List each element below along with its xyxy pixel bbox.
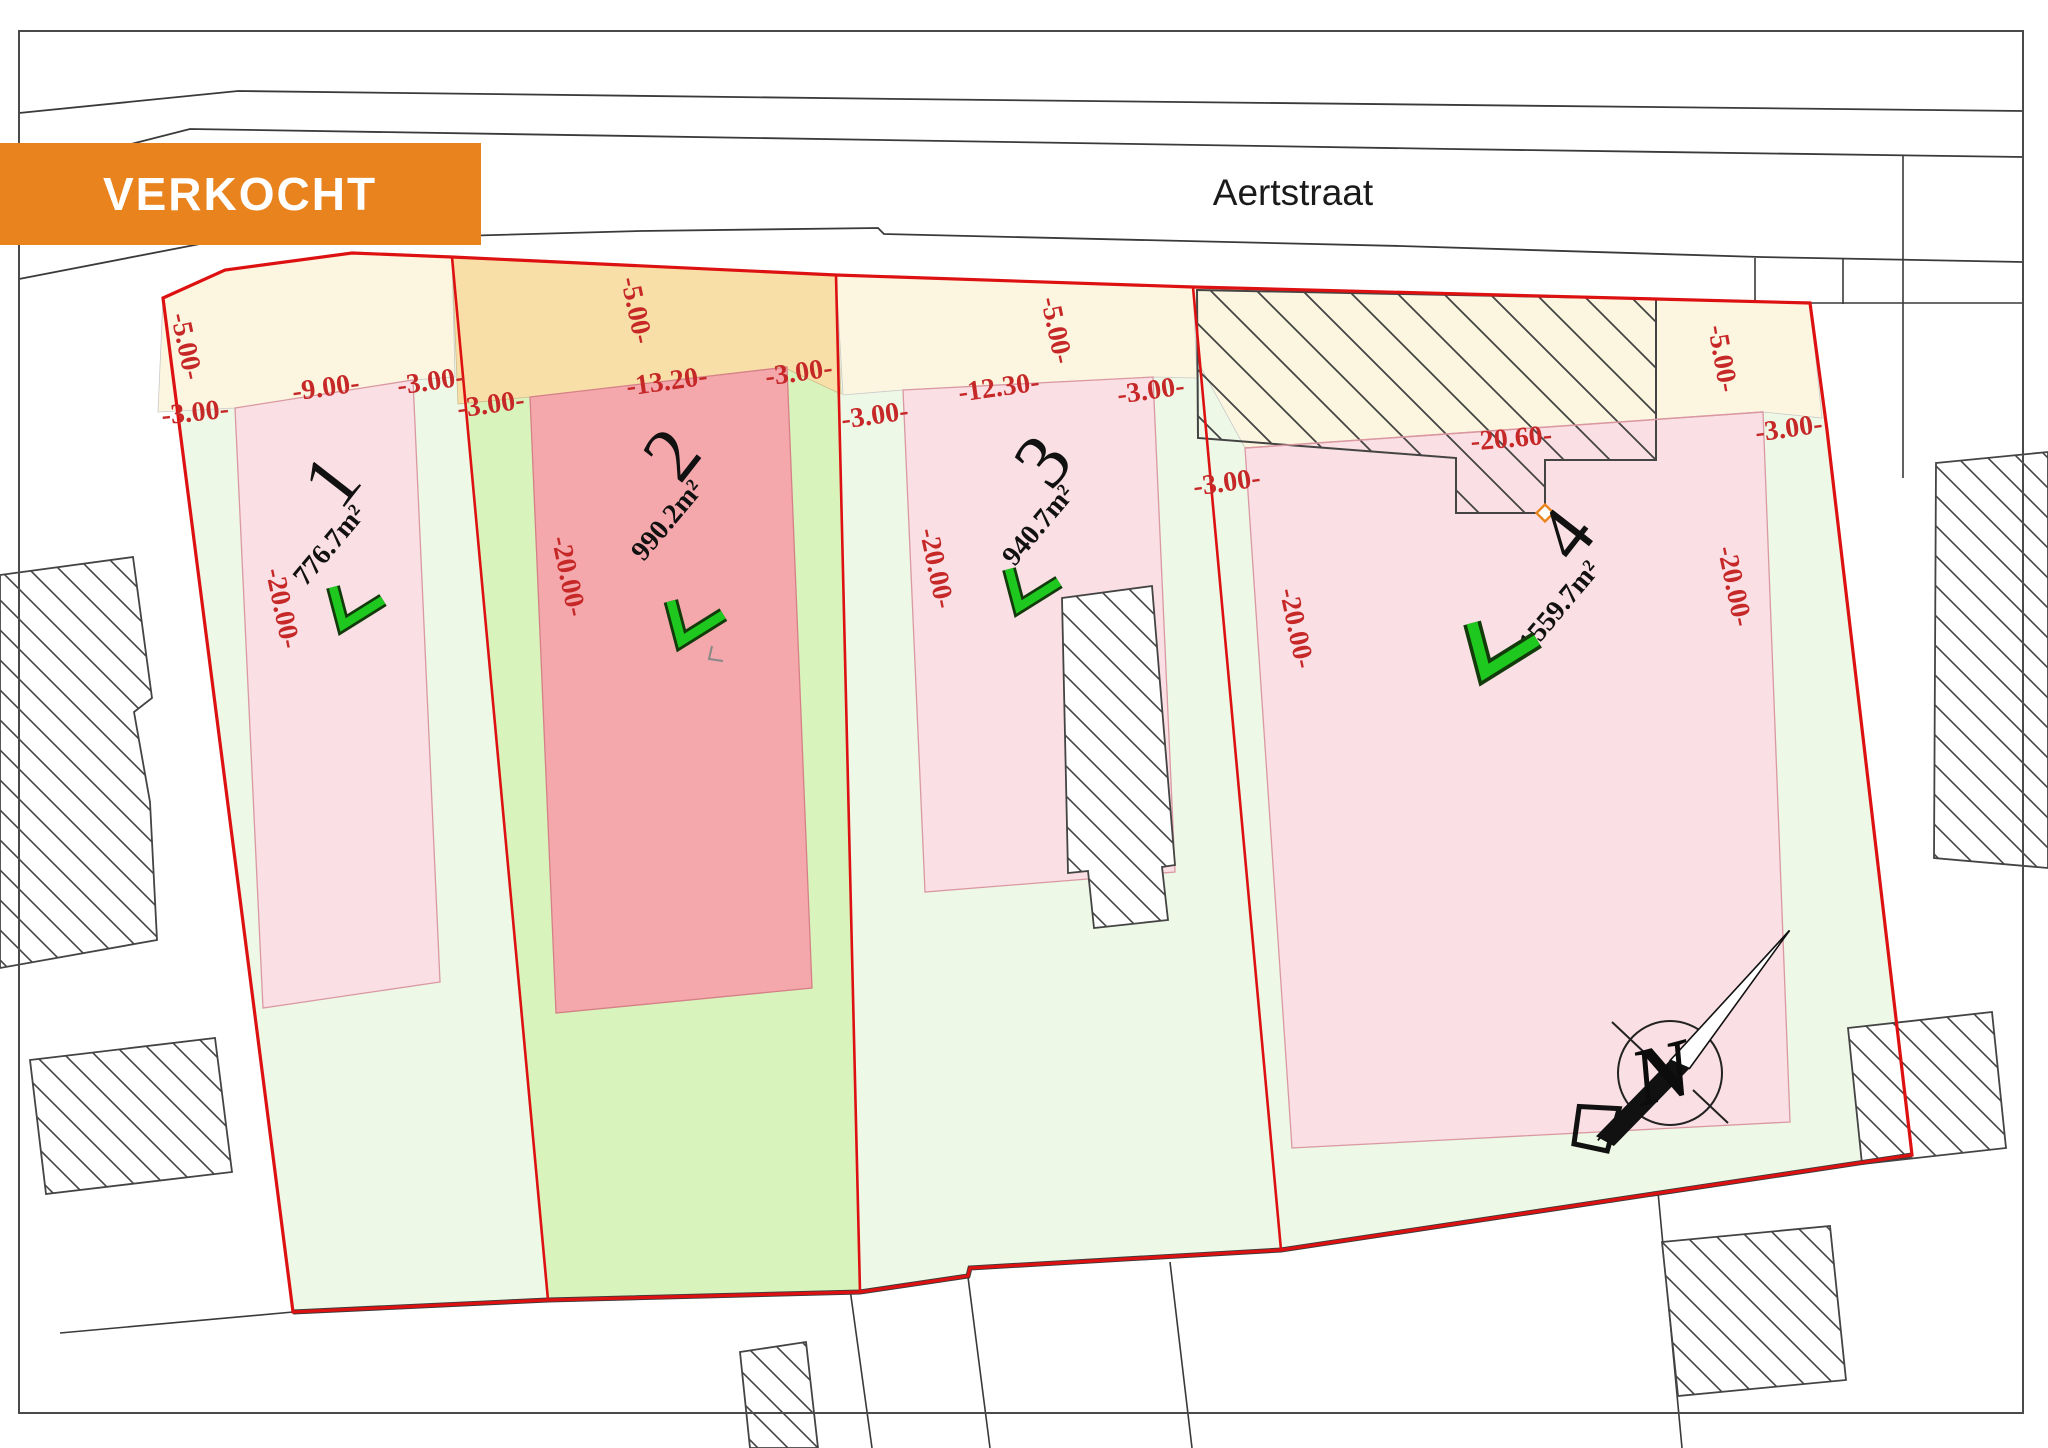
sold-banner-label: VERKOCHT: [103, 168, 377, 220]
site-plan: N -5.00--3.00--9.00--3.00--3.00--5.00--1…: [0, 0, 2048, 1448]
neighbour-building-bottom-middle: [740, 1342, 818, 1448]
neighbour-building-left-lower: [30, 1038, 232, 1194]
neighbour-building-right-mid: [1934, 452, 2048, 868]
sold-banner: VERKOCHT: [0, 143, 481, 245]
street-name-label: Aertstraat: [1213, 172, 1374, 213]
neighbour-building-right-lower: [1848, 1012, 2006, 1164]
neighbour-building-left: [0, 557, 157, 968]
neighbour-building-bottom-right: [1662, 1226, 1846, 1396]
